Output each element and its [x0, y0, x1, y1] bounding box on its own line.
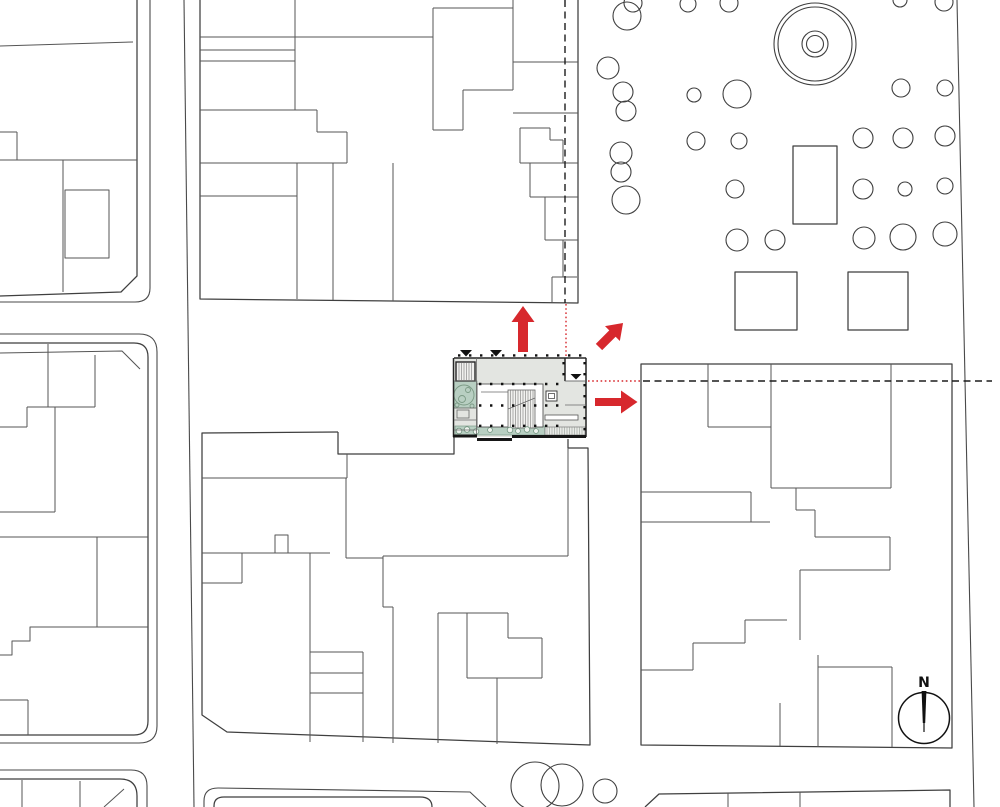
bottom-wall — [453, 436, 586, 440]
park-platform-left — [735, 272, 797, 330]
arrow-up-icon — [512, 306, 535, 352]
site-building — [453, 350, 586, 440]
building-bottom-center — [214, 797, 432, 807]
arrow-right-icon — [595, 391, 638, 414]
north-compass: N — [899, 675, 950, 744]
park-trees — [597, 0, 957, 251]
block-top-left — [0, 0, 137, 296]
arrow-diagonal-icon — [592, 316, 631, 355]
park-platform-right — [848, 272, 908, 330]
block-bottom-right — [645, 790, 950, 807]
fountain-icon — [774, 3, 856, 85]
site-plan-canvas: N — [0, 0, 1000, 807]
block-top-middle — [200, 0, 578, 303]
north-label: N — [918, 675, 930, 691]
bench — [545, 415, 578, 420]
block-right-middle — [641, 364, 952, 748]
block-bottom-left — [0, 779, 137, 807]
block-bottom-middle — [202, 432, 590, 745]
secondary-stair — [456, 362, 475, 381]
elevator — [546, 391, 557, 401]
park-pavilion — [793, 146, 837, 224]
site-plan-page: N — [0, 0, 1000, 807]
compass-needle-icon — [922, 691, 927, 723]
block-left-middle — [0, 343, 148, 735]
street-trees-bottom — [511, 762, 617, 807]
paving-hatch — [545, 427, 585, 435]
